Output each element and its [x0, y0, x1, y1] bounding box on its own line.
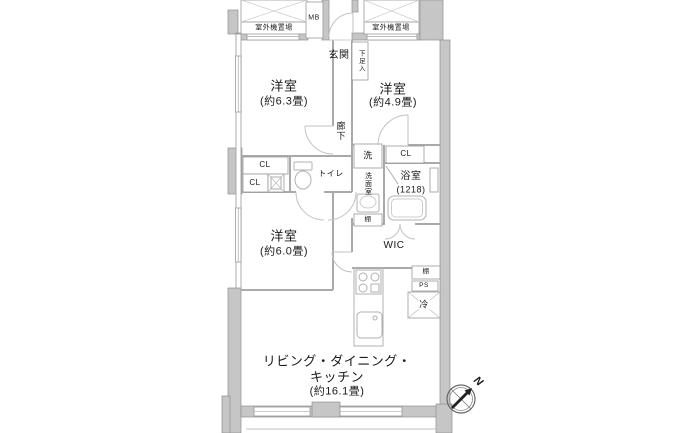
stove-grill	[371, 284, 379, 292]
compass-needle	[452, 391, 469, 408]
entrance-door	[329, 13, 353, 37]
toilet-bowl	[295, 171, 311, 189]
ldk-label-line1: リビング・ダイニング・	[263, 355, 412, 368]
closet-label-2: CL	[249, 179, 260, 187]
closet-label-bath: CL	[400, 150, 411, 158]
stove-burner-1	[359, 273, 367, 281]
wall-entrance-right-jamb	[352, 0, 358, 12]
wall-pillar-top-left	[228, 10, 238, 34]
ldk-label-line2: キッチン	[310, 371, 364, 384]
kitchen-counter	[354, 268, 383, 346]
bedroom3-door	[296, 192, 324, 220]
outdoor-unit-label-right: 室外機置場	[372, 25, 410, 32]
service-boxes-top	[241, 0, 419, 38]
bathtub-inner	[392, 199, 423, 217]
washbasin-bowl	[360, 196, 376, 208]
wall-left-step	[222, 396, 230, 433]
bedroom2-size-label: (約4.9畳)	[369, 98, 417, 109]
compass	[447, 385, 475, 413]
bedroom1-door	[305, 126, 333, 154]
wall-pillar-top-right	[420, 0, 443, 40]
wall-right	[440, 40, 450, 412]
bathroom-label: 浴室	[401, 172, 422, 182]
wall-corner-bottom-right	[436, 404, 452, 433]
wic-label: WIC	[384, 241, 405, 251]
ldk-size-label: (約16.1畳)	[310, 387, 365, 398]
shoe-cabinet-label: 下足入	[357, 50, 364, 73]
kitchen-faucet	[373, 316, 377, 320]
hallway-label: 廊下	[336, 121, 345, 141]
shelf-label-kitchen: 棚	[423, 269, 430, 276]
bathroom-size-label: (1218)	[396, 186, 425, 195]
washer-label: 洗	[363, 152, 373, 161]
bedroom3-label: 洋室	[270, 230, 297, 243]
bedroom1-label: 洋室	[270, 80, 297, 93]
bedroom3-size-label: (約6.0畳)	[260, 247, 308, 258]
refrigerator-label: 冷	[418, 301, 430, 310]
stove-burner-3	[359, 284, 367, 292]
toilet-label: トイレ	[318, 170, 344, 178]
washroom-label: 洗面室	[365, 172, 372, 196]
floorplan: 室外機置場 室外機置場 MB 玄関 下足入 洋室 (約6.3畳) 洋室 (約4.…	[0, 0, 700, 433]
bedroom1-size-label: (約6.3畳)	[260, 97, 308, 108]
stove-burner-2	[371, 273, 379, 281]
kitchen-sink	[357, 312, 382, 338]
ldk-door	[332, 252, 352, 272]
shelf-label-washroom: 棚	[365, 217, 372, 224]
entrance-label: 玄関	[329, 51, 350, 61]
meter-box-label: MB	[308, 15, 320, 22]
bedroom2-label: 洋室	[379, 83, 406, 96]
bath-door-leaf	[386, 166, 398, 184]
toilet-tank	[294, 162, 312, 170]
bedroom2-door	[378, 115, 408, 145]
closet-label-1: CL	[259, 161, 270, 169]
bath-ledge	[430, 168, 438, 192]
wall-bottom-stub	[312, 402, 340, 417]
wic-door	[385, 224, 415, 239]
pipe-space-label: PS	[419, 283, 429, 290]
outdoor-unit-label-left: 室外機置場	[255, 25, 293, 32]
